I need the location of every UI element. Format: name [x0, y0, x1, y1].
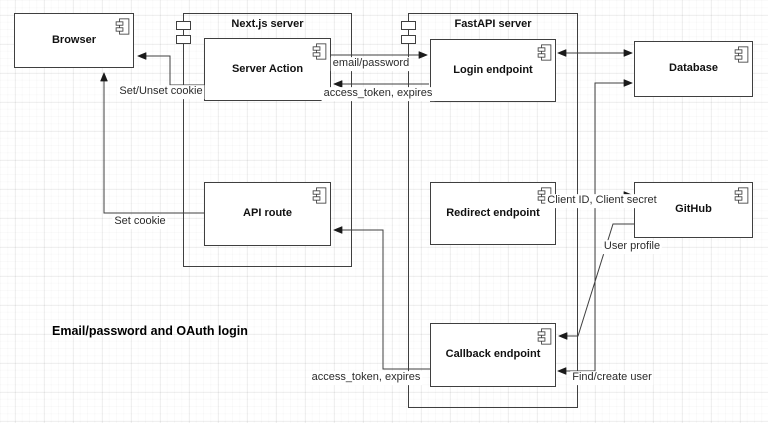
- callback-endpoint-label: Callback endpoint: [446, 348, 541, 361]
- component-icon: [734, 46, 749, 63]
- edge-label-set-cookie[interactable]: Set cookie: [112, 215, 167, 229]
- nextjs-server-title: Next.js server: [184, 18, 351, 30]
- component-tab-icon: [401, 35, 416, 44]
- github-label: GitHub: [675, 203, 712, 216]
- node-server-action[interactable]: Server Action: [204, 38, 331, 101]
- component-icon: [734, 187, 749, 204]
- node-github[interactable]: GitHub: [634, 182, 753, 238]
- edge-label-client-credentials[interactable]: Client ID, Client secret: [545, 194, 658, 208]
- edge-label-find-create-user[interactable]: Find/create user: [570, 371, 653, 385]
- node-api-route[interactable]: API route: [204, 182, 331, 246]
- node-browser[interactable]: Browser: [14, 13, 134, 68]
- node-login-endpoint[interactable]: Login endpoint: [430, 39, 556, 102]
- redirect-endpoint-label: Redirect endpoint: [446, 207, 540, 220]
- fastapi-server-title: FastAPI server: [409, 18, 577, 30]
- edge-label-user-profile[interactable]: User profile: [602, 240, 662, 254]
- node-redirect-endpoint[interactable]: Redirect endpoint: [430, 182, 556, 245]
- edge-label-email-password[interactable]: email/password: [331, 57, 411, 71]
- component-tab-icon: [176, 21, 191, 30]
- component-icon: [537, 44, 552, 61]
- edge-label-set-unset-cookie[interactable]: Set/Unset cookie: [117, 85, 204, 99]
- component-tab-icon: [176, 35, 191, 44]
- login-endpoint-label: Login endpoint: [453, 64, 532, 77]
- browser-label: Browser: [52, 34, 96, 47]
- database-label: Database: [669, 62, 718, 75]
- component-icon: [312, 43, 327, 60]
- component-icon: [537, 328, 552, 345]
- node-callback-endpoint[interactable]: Callback endpoint: [430, 323, 556, 387]
- component-icon: [312, 187, 327, 204]
- diagram-title: Email/password and OAuth login: [52, 324, 248, 338]
- component-tab-icon: [401, 21, 416, 30]
- server-action-label: Server Action: [232, 63, 303, 76]
- api-route-label: API route: [243, 207, 292, 220]
- edge-label-access-token-top[interactable]: access_token, expires: [322, 87, 435, 101]
- component-icon: [115, 18, 130, 35]
- edge-label-access-token-bottom[interactable]: access_token, expires: [310, 371, 423, 385]
- diagram-canvas: Next.js server FastAPI server Browser Se…: [0, 0, 768, 423]
- node-database[interactable]: Database: [634, 41, 753, 97]
